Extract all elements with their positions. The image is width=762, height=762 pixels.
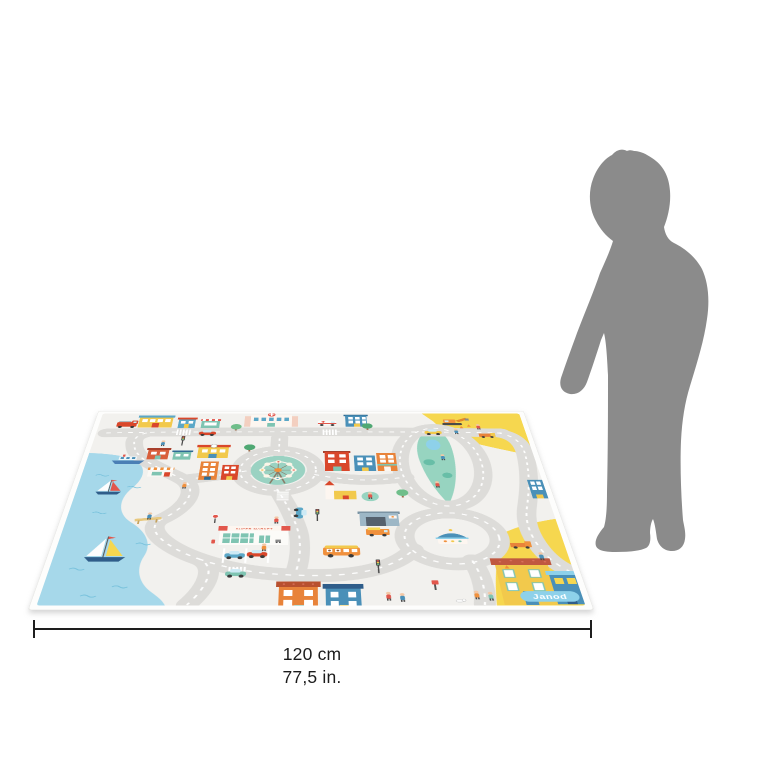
dimension-label-metric: 120 cm: [212, 643, 412, 666]
product-size-diagram: SUPER MARKET: [0, 0, 762, 762]
dimension-label-imperial: 77,5 in.: [212, 666, 412, 689]
child-silhouette-shape: [560, 150, 708, 552]
dimension-line: [33, 628, 592, 630]
dimension-labels: 120 cm 77,5 in.: [212, 643, 412, 689]
dimension-tick-right: [590, 620, 592, 638]
